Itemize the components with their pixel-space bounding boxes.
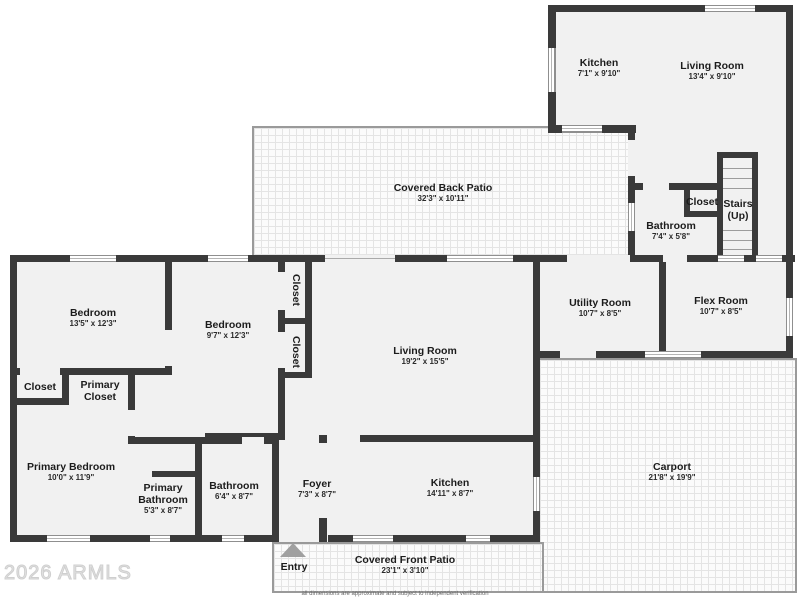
wall (283, 318, 310, 324)
door-opening (663, 255, 687, 262)
room-label-front-patio: Covered Front Patio 23'1" x 3'10" (355, 554, 455, 576)
stair-tread (723, 230, 752, 231)
window (562, 125, 602, 133)
door-opening (278, 332, 285, 368)
wall (548, 5, 793, 12)
room-label-bathroom-main: Bathroom 6'4" x 8'7" (209, 480, 259, 502)
stair-tread (723, 168, 752, 169)
wall (152, 471, 195, 477)
window (70, 255, 116, 262)
room-label-closet-v2: Closet (290, 336, 302, 368)
window (533, 477, 540, 511)
room-label-bedroom1: Bedroom 13'5" x 12'3" (70, 307, 117, 329)
room-label-closet-small: Closet (24, 381, 56, 393)
wall (786, 5, 793, 262)
wall (659, 262, 666, 354)
stair-tread (723, 178, 752, 179)
door-opening (560, 351, 596, 358)
wall (319, 435, 327, 443)
stair-tread (723, 249, 752, 250)
armls-watermark: 2026 ARMLS (4, 562, 132, 585)
window (222, 535, 244, 542)
room-label-bedroom2: Bedroom 9'7" x 12'3" (205, 319, 251, 341)
room-label-bathroom-upper: Bathroom 7'4" x 5'8" (646, 220, 696, 242)
room-label-closet-v1: Closet (290, 274, 302, 306)
room-label-kitchen-upper: Kitchen 7'1" x 9'10" (578, 57, 621, 79)
door-opening (20, 368, 60, 375)
stair-tread (723, 240, 752, 241)
entry-label: Entry (281, 561, 308, 573)
disclaimer-text: all dimensions are approximate and subje… (301, 591, 488, 597)
wall (10, 398, 69, 405)
room-label-stairs: Stairs (Up) (723, 198, 752, 222)
room-label-primary-bedroom: Primary Bedroom 10'0" x 11'9" (27, 461, 115, 483)
room-label-primary-bathroom: Primary Bathroom 5'3" x 8'7" (132, 482, 194, 516)
sliding-door-opening (325, 255, 395, 262)
room-label-flex: Flex Room 10'7" x 8'5" (694, 295, 748, 317)
window (756, 255, 782, 262)
floor-plan: Kitchen 7'1" x 9'10" Living Room 13'4" x… (0, 0, 800, 606)
room-label-foyer: Foyer 7'3" x 8'7" (298, 478, 336, 500)
door-opening (643, 183, 669, 190)
door-opening (165, 330, 172, 366)
window (47, 535, 90, 542)
window (628, 203, 635, 231)
wall (684, 211, 720, 217)
room-label-back-patio: Covered Back Patio 32'3" x 10'11" (394, 182, 493, 204)
wall (272, 437, 279, 542)
room-label-living-main: Living Room 19'2" x 15'5" (393, 345, 457, 367)
room-label-utility: Utility Room 10'7" x 8'5" (569, 297, 631, 319)
wall (752, 152, 758, 258)
window (786, 298, 793, 336)
window (466, 535, 490, 542)
door-opening (628, 140, 635, 176)
room-label-primary-closet: Primary Closet (68, 379, 132, 403)
room-label-living-upper: Living Room 13'4" x 9'10" (680, 60, 744, 82)
window (705, 5, 755, 12)
window (208, 255, 248, 262)
window (645, 351, 701, 358)
window (548, 48, 556, 92)
room-label-kitchen-main: Kitchen 14'11" x 8'7" (427, 477, 474, 499)
wall (319, 518, 327, 542)
stair-tread (723, 188, 752, 189)
wall (283, 372, 310, 378)
door-opening (278, 272, 285, 310)
wall (305, 255, 312, 378)
door-opening (128, 410, 135, 436)
door-opening (242, 437, 264, 444)
wall (360, 435, 540, 442)
door-opening (567, 255, 630, 262)
wall (195, 444, 202, 535)
room-label-carport: Carport 21'8" x 19'9" (649, 461, 696, 483)
entry-arrow-icon (280, 543, 306, 557)
window (447, 255, 513, 262)
window (150, 535, 170, 542)
window (353, 535, 393, 542)
room-label-closet-upper: Closet (686, 196, 718, 208)
window (718, 255, 744, 262)
